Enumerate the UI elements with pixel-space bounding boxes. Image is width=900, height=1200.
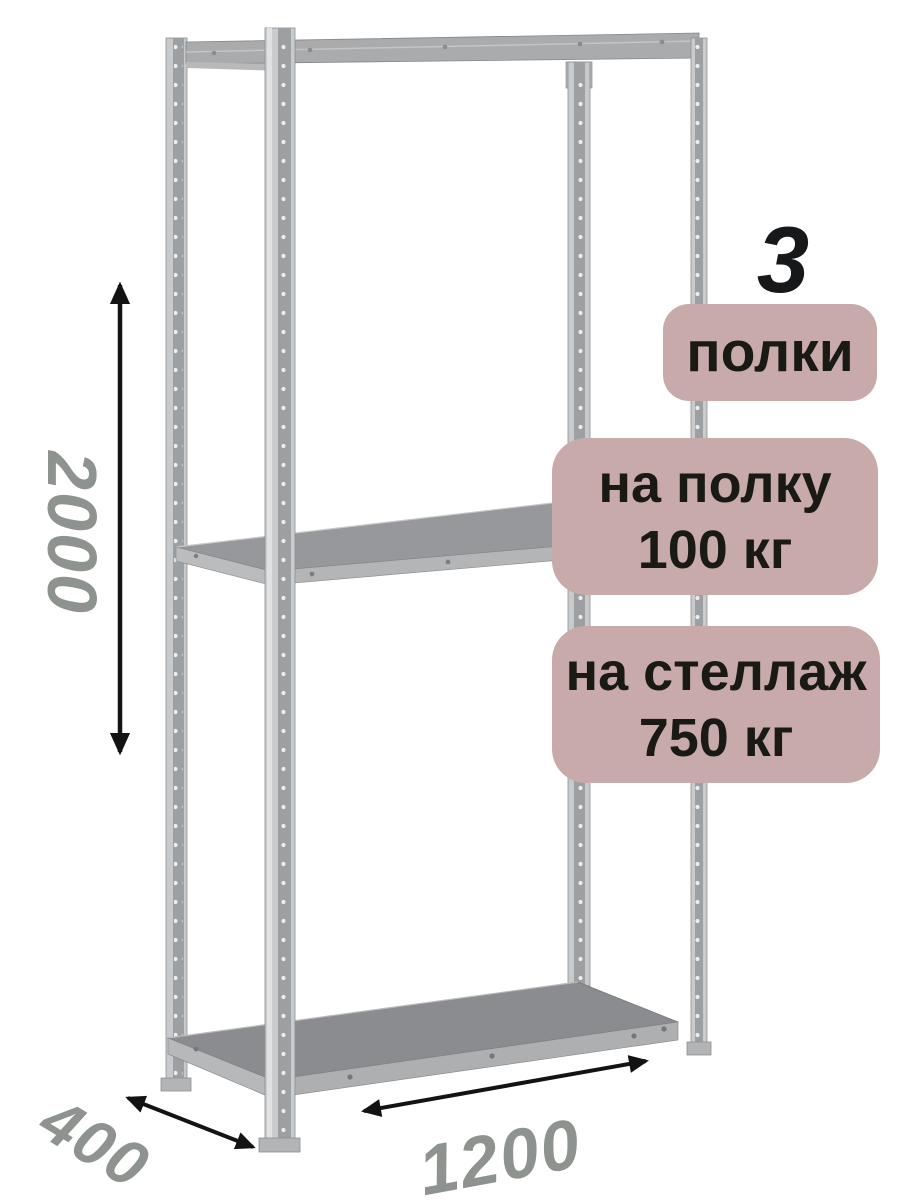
rack-post-back-left [161,38,191,1091]
rack-shelf-top [186,33,699,71]
post-foot [687,1042,711,1055]
post-foot [259,1138,300,1152]
per-rack-load-line2: 750 кг [552,705,880,771]
per-shelf-load-line2: 100 кг [552,517,878,583]
height-dimension-label: 2000 [37,383,107,683]
per-rack-load-badge: на стеллаж 750 кг [552,626,880,783]
per-shelf-load-line1: на полку [552,451,878,517]
per-shelf-load-badge: на полку 100 кг [552,438,878,595]
shelving-rack-illustration [0,0,900,1200]
post-foot [161,1078,191,1091]
shelf-count-badge: полки [663,304,877,401]
shelf-count-value: 3 [728,210,838,310]
product-image: 2000 400 1200 3 полки на полку 100 кг на… [0,0,900,1200]
rack-post-front-left [259,28,300,1152]
per-rack-load-line1: на стеллаж [552,639,880,705]
rack-shelf-bottom [168,982,678,1098]
